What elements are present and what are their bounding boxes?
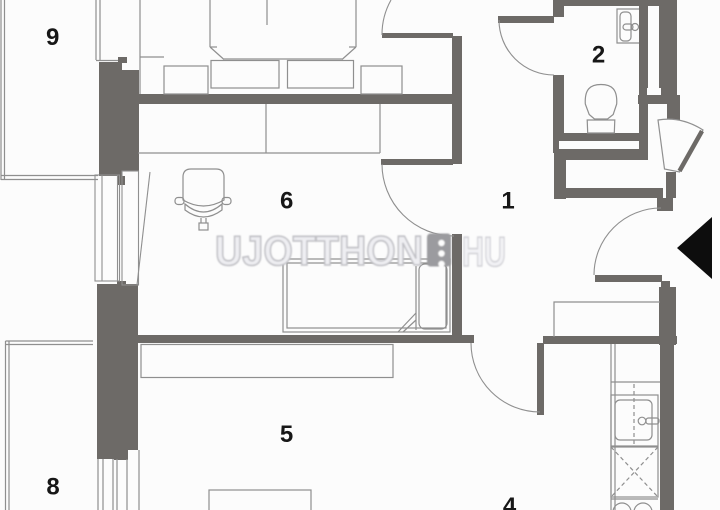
svg-text:2: 2 — [592, 42, 605, 69]
svg-text:8: 8 — [46, 474, 59, 501]
svg-text:6: 6 — [280, 188, 293, 215]
svg-text:5: 5 — [280, 421, 293, 448]
svg-text:9: 9 — [46, 24, 59, 51]
svg-text:UJOTTHON: UJOTTHON — [215, 227, 423, 274]
svg-text:HU: HU — [462, 228, 506, 275]
svg-text:1: 1 — [501, 188, 514, 215]
svg-text:4: 4 — [503, 493, 517, 510]
